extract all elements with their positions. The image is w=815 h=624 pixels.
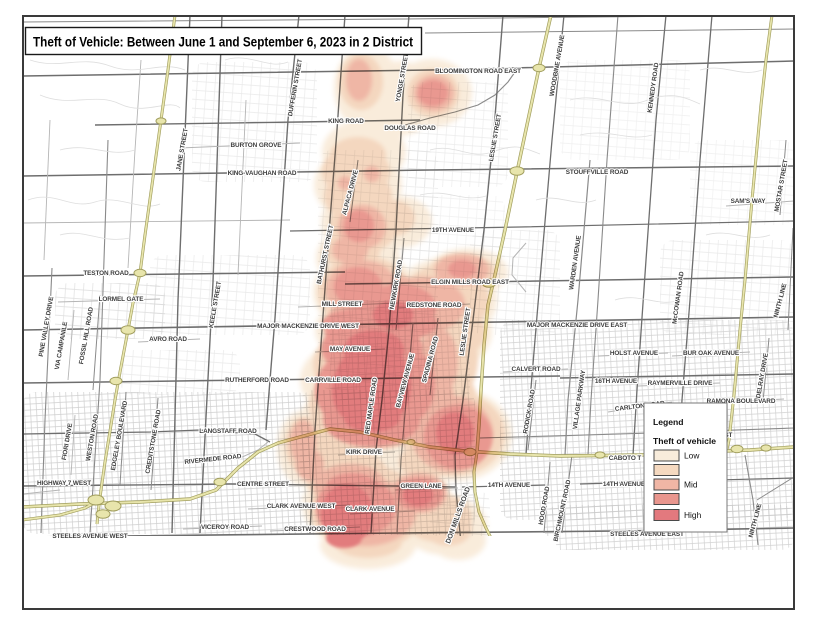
svg-text:TESTON ROAD: TESTON ROAD (83, 270, 129, 277)
svg-text:MAJOR MACKENZIE DRIVE EAST: MAJOR MACKENZIE DRIVE EAST (527, 322, 628, 329)
svg-text:CLARK AVENUE WEST: CLARK AVENUE WEST (267, 503, 336, 510)
svg-text:CLARK AVENUE: CLARK AVENUE (346, 506, 396, 513)
svg-text:RUTHERFORD ROAD: RUTHERFORD ROAD (225, 377, 289, 384)
svg-text:BUR OAK AVENUE: BUR OAK AVENUE (683, 350, 740, 357)
svg-text:HOLST AVENUE: HOLST AVENUE (610, 350, 659, 357)
svg-text:Legend: Legend (653, 417, 684, 427)
svg-text:KIRK DRIVE: KIRK DRIVE (346, 449, 383, 456)
svg-text:Mid: Mid (684, 480, 698, 490)
svg-text:KING ROAD: KING ROAD (328, 118, 364, 125)
svg-text:DOUGLAS ROAD: DOUGLAS ROAD (384, 125, 436, 132)
svg-text:14TH AVENUE: 14TH AVENUE (603, 481, 646, 488)
svg-text:KING-VAUGHAN ROAD: KING-VAUGHAN ROAD (228, 170, 297, 177)
svg-text:MILL STREET: MILL STREET (322, 301, 363, 308)
svg-text:REDSTONE ROAD: REDSTONE ROAD (407, 302, 462, 309)
svg-text:19TH AVENUE: 19TH AVENUE (432, 227, 475, 234)
svg-text:MAY AVENUE: MAY AVENUE (330, 346, 371, 353)
svg-text:VICEROY ROAD: VICEROY ROAD (201, 524, 250, 531)
svg-text:LANGSTAFF ROAD: LANGSTAFF ROAD (199, 428, 257, 435)
svg-text:High: High (684, 510, 702, 520)
svg-text:CENTRE STREET: CENTRE STREET (237, 481, 289, 488)
svg-text:CRESTWOOD ROAD: CRESTWOOD ROAD (284, 526, 346, 533)
svg-text:14TH AVENUE: 14TH AVENUE (488, 482, 531, 489)
svg-text:CALVERT ROAD: CALVERT ROAD (511, 366, 561, 373)
svg-text:GREEN LANE: GREEN LANE (401, 483, 443, 490)
svg-text:CABOTO T: CABOTO T (609, 455, 642, 462)
svg-text:AVRO ROAD: AVRO ROAD (149, 336, 187, 343)
svg-text:Theft of vehicle: Theft of vehicle (653, 436, 716, 446)
svg-text:Theft of Vehicle: Between June: Theft of Vehicle: Between June 1 and Sep… (33, 35, 413, 50)
svg-text:Low: Low (684, 451, 700, 461)
svg-text:LORMEL GATE: LORMEL GATE (99, 296, 145, 303)
svg-text:STOUFFVILLE ROAD: STOUFFVILLE ROAD (566, 169, 629, 176)
svg-text:SAM'S WAY: SAM'S WAY (731, 198, 767, 205)
svg-text:STEELES AVENUE WEST: STEELES AVENUE WEST (52, 533, 127, 540)
svg-text:CARRVILLE ROAD: CARRVILLE ROAD (305, 377, 361, 384)
svg-text:RAYMERVILLE DRIVE: RAYMERVILLE DRIVE (648, 380, 714, 387)
svg-text:16TH AVENUE: 16TH AVENUE (595, 378, 638, 385)
svg-text:BURTON GROVE: BURTON GROVE (231, 142, 283, 149)
svg-text:BLOOMINGTON ROAD EAST: BLOOMINGTON ROAD EAST (435, 68, 521, 75)
svg-text:MAJOR MACKENZIE DRIVE WEST: MAJOR MACKENZIE DRIVE WEST (257, 323, 359, 330)
svg-text:ELGIN MILLS ROAD EAST: ELGIN MILLS ROAD EAST (431, 279, 509, 286)
svg-text:HIGHWAY 7 WEST: HIGHWAY 7 WEST (37, 480, 91, 487)
